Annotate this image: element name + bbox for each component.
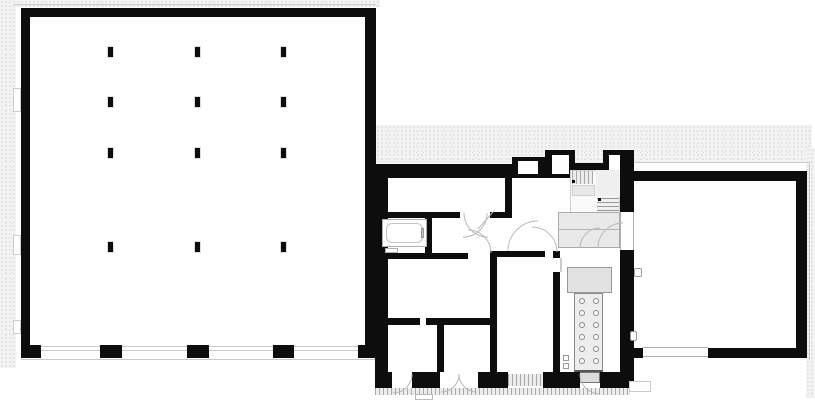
middle-facade-pier [478,372,508,388]
equipment-circle [579,334,585,340]
structural-column [195,242,200,252]
equipment-circle [593,298,599,304]
equipment-circle [593,358,599,364]
structural-column [195,97,200,107]
structural-column [195,47,200,57]
structural-column [281,148,286,158]
middle-facade-pier [600,372,620,388]
left-hall-facade-pier [100,345,122,358]
facade-notch [13,320,21,334]
equipment-circle [593,310,599,316]
floor-plan-canvas [0,0,815,400]
left-hall-facade-pier [358,345,376,358]
structural-column [108,242,113,252]
facade-notch [13,235,21,255]
structural-column [108,148,113,158]
equipment-circle [579,346,585,352]
structural-column [195,148,200,158]
equipment-circle [579,298,585,304]
generated-elements-layer [0,0,815,400]
structural-column [281,47,286,57]
left-hall-facade-pier [21,345,41,358]
left-hall-facade-pier [273,345,294,358]
structural-column [281,242,286,252]
left-hall-facade-pier [187,345,209,358]
equipment-circle [579,322,585,328]
middle-facade-pier [375,372,392,388]
equipment-circle [579,310,585,316]
equipment-circle [579,358,585,364]
middle-facade-pier [543,372,580,388]
structural-column [281,97,286,107]
equipment-circle [593,322,599,328]
equipment-circle [593,346,599,352]
facade-notch [13,88,21,112]
equipment-circle [593,334,599,340]
structural-column [108,97,113,107]
middle-facade-pier [412,372,440,388]
structural-column [108,47,113,57]
